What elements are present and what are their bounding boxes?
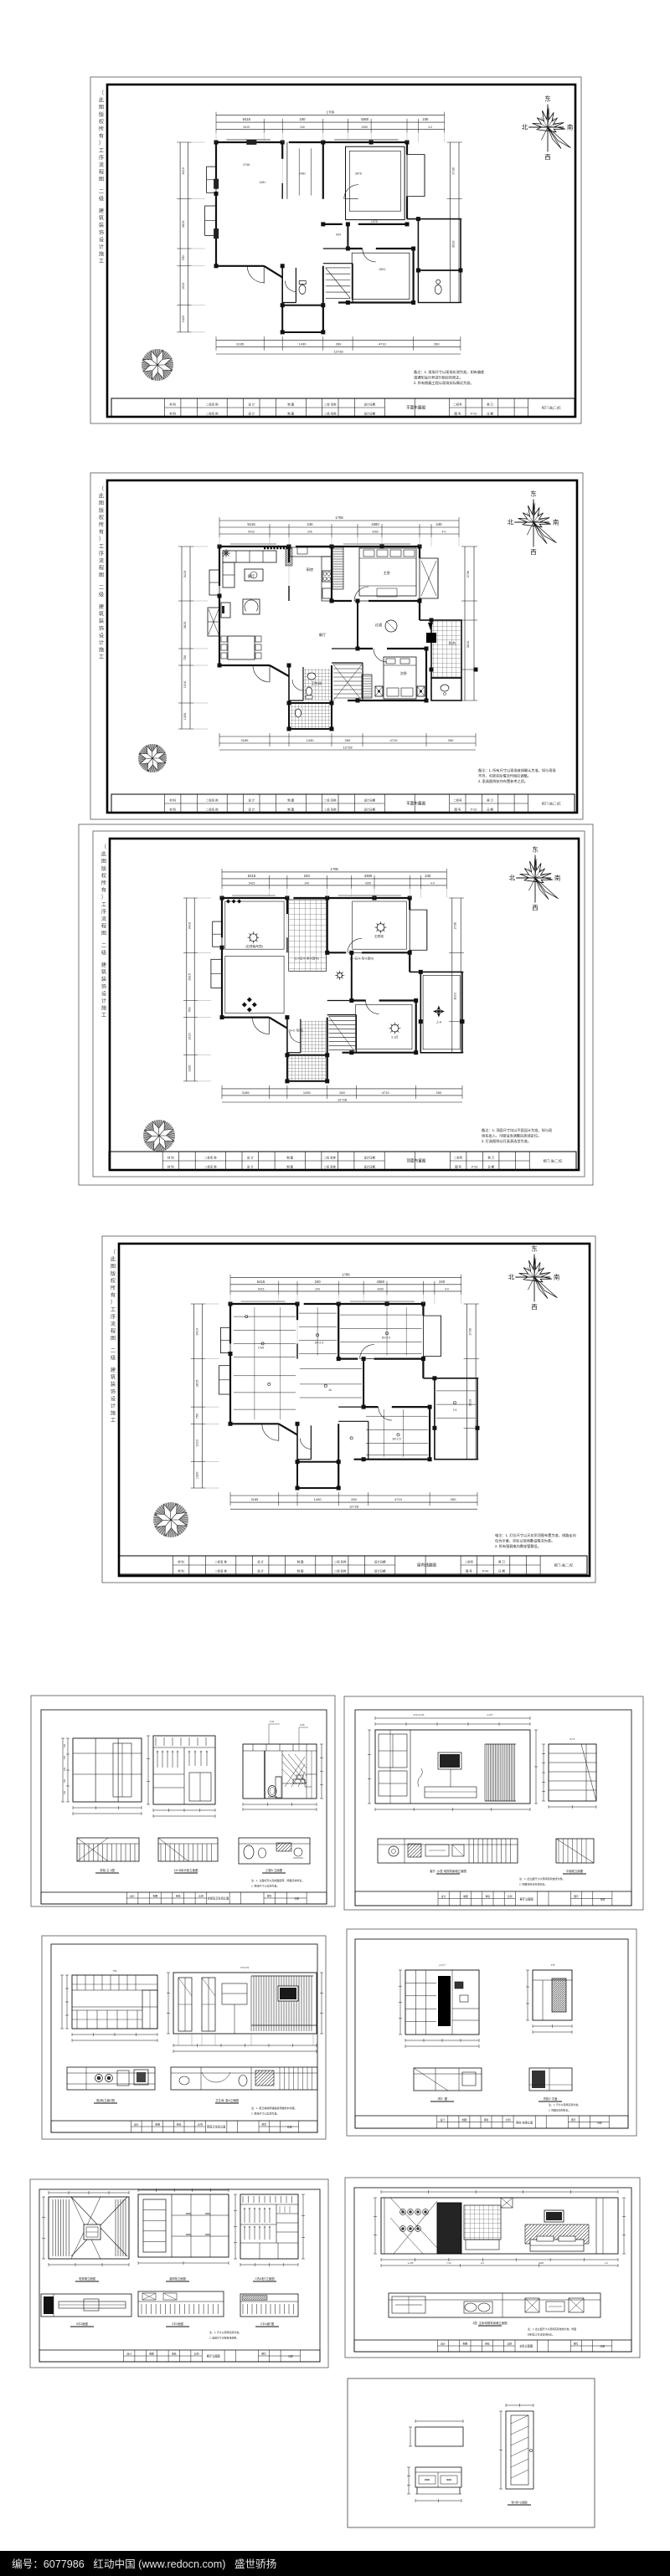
svg-text:备注：1. 顶面尺寸均以平面设计为准，如与现: 备注：1. 顶面尺寸均以平面设计为准，如与现 — [482, 1127, 552, 1133]
svg-text:4260: 4260 — [365, 881, 372, 885]
svg-text:二标 名称: 二标 名称 — [324, 402, 337, 406]
svg-text:（: （ — [99, 90, 104, 96]
svg-text:图: 图 — [101, 859, 106, 865]
svg-text:屋内线路图: 屋内线路图 — [417, 1563, 436, 1568]
svg-text:计: 计 — [111, 1403, 116, 1409]
svg-text:（: （ — [111, 1250, 116, 1255]
svg-text:P-01: P-01 — [471, 412, 477, 415]
svg-text:南: 南 — [554, 1273, 560, 1281]
svg-text:540: 540 — [63, 1778, 66, 1783]
svg-text:二标名 称: 二标名 称 — [206, 411, 219, 415]
svg-text:装: 装 — [101, 976, 106, 983]
svg-text:装: 装 — [99, 222, 104, 228]
svg-text:注：1. 立面标高以完成面起算，饰面见材料表。: 注：1. 立面标高以完成面起算，饰面见材料表。 — [251, 1878, 304, 1882]
svg-text:东: 东 — [531, 1244, 538, 1253]
svg-text:260: 260 — [436, 1090, 442, 1095]
svg-text:540: 540 — [63, 1755, 66, 1759]
svg-text:比例: 比例 — [508, 1895, 513, 1898]
svg-text:设计: 设计 — [441, 1895, 446, 1898]
svg-text:有: 有 — [99, 133, 104, 140]
svg-text:卫生间. 各A立面图: 卫生间. 各A立面图 — [215, 2098, 239, 2102]
svg-text:240: 240 — [422, 117, 429, 121]
svg-text:3010: 3010 — [468, 1399, 472, 1406]
svg-text:260: 260 — [434, 342, 440, 346]
svg-text:施: 施 — [99, 251, 104, 258]
svg-text:制 图: 制 图 — [287, 798, 294, 802]
svg-text:图: 图 — [99, 572, 104, 578]
svg-text:5415: 5415 — [258, 1287, 265, 1291]
svg-text:1A+B床头柜立面图: 1A+B床头柜立面图 — [174, 1868, 198, 1872]
svg-text:图号: 图号 — [574, 2343, 579, 2346]
svg-text:540: 540 — [63, 1743, 66, 1747]
svg-text:-吧Z·-图: -吧Z·-图 — [437, 2097, 448, 2101]
svg-text:流: 流 — [99, 557, 104, 564]
svg-text:5415: 5415 — [257, 1280, 265, 1284]
svg-text:设计: 设计 — [440, 2118, 445, 2122]
svg-text:平面布置图: 平面布置图 — [406, 801, 425, 807]
svg-text:二标 名称: 二标 名称 — [334, 1559, 347, 1563]
svg-text:1430: 1430 — [303, 1090, 312, 1095]
svg-text:上-H: 上-H — [436, 1020, 442, 1024]
svg-text:540: 540 — [63, 1790, 66, 1794]
svg-text:）: ） — [111, 1300, 116, 1306]
svg-text:2815: 2815 — [195, 1380, 198, 1387]
svg-text:程: 程 — [101, 923, 106, 930]
svg-text:二: 二 — [101, 943, 106, 949]
svg-text:级: 级 — [111, 1354, 116, 1361]
svg-text:权: 权 — [99, 514, 104, 521]
svg-text:（: （ — [99, 486, 104, 492]
svg-text:5415: 5415 — [249, 881, 255, 885]
svg-text:阳台: 阳台 — [449, 640, 456, 646]
svg-text:C衣A柜T立面图: C衣A柜T立面图 — [255, 2276, 275, 2281]
svg-text:注：1. 厨卫墙地砖铺贴前须做防水处理。: 注：1. 厨卫墙地砖铺贴前须做防水处理。 — [251, 2106, 296, 2110]
svg-text:序: 序 — [101, 908, 106, 915]
svg-text:厨房: 厨房 — [307, 567, 313, 572]
svg-text:东: 东 — [532, 845, 539, 854]
svg-text:东: 东 — [530, 490, 537, 498]
svg-text:南: 南 — [567, 123, 574, 131]
svg-text:设: 设 — [111, 1395, 116, 1402]
svg-text:P-04: P-04 — [482, 1569, 488, 1573]
svg-text:C平A面T图: C平A面T图 — [260, 2322, 275, 2326]
svg-text:客厅立面图: 客厅立面图 — [207, 2354, 220, 2358]
svg-text:1375: 1375 — [371, 220, 378, 223]
svg-text:制 图: 制 图 — [297, 1568, 304, 1573]
svg-text:2891: 2891 — [379, 268, 385, 271]
svg-text:厨房卫生间立面: 厨房卫生间立面 — [207, 2125, 225, 2129]
svg-text:图 号: 图 号 — [455, 411, 461, 415]
svg-text:240: 240 — [304, 874, 311, 878]
svg-text:二标 名称: 二标 名称 — [323, 1155, 336, 1159]
svg-text:4-0: 4-0 — [428, 126, 432, 129]
svg-text:二标号: 二标号 — [454, 1155, 463, 1159]
svg-text:1?06: 1?06 — [327, 110, 335, 115]
svg-text:1010: 1010 — [188, 1033, 192, 1039]
svg-text:校门·运(二)忆: 校门·运(二)忆 — [542, 802, 561, 806]
svg-text:1?06: 1?06 — [335, 516, 343, 520]
svg-text:制 图: 制 图 — [287, 807, 294, 811]
svg-text:2815: 2815 — [183, 622, 187, 629]
svg-text:男 刀: 男 刀 — [498, 1559, 505, 1563]
svg-text:此: 此 — [99, 97, 104, 104]
svg-text:设计: 设计 — [130, 1895, 135, 1898]
svg-text:日期: 日期 — [287, 2126, 292, 2129]
svg-text:4260: 4260 — [362, 126, 368, 129]
svg-text:3010: 3010 — [454, 993, 457, 999]
svg-text:材 料: 材 料 — [169, 402, 176, 406]
svg-text:衣柜-立-1图: 衣柜-立-1图 — [100, 1868, 115, 1872]
svg-text:注：1. 此立面尺寸以现场实际放线为准。: 注：1. 此立面尺寸以现场实际放线为准。 — [519, 1876, 564, 1881]
svg-text:工: 工 — [99, 544, 104, 550]
svg-text:?-5·0-51: ?-5·0-51 — [240, 1966, 250, 1969]
svg-text:所: 所 — [99, 521, 104, 528]
svg-text:材 料: 材 料 — [167, 1164, 174, 1168]
svg-text:衣柜及卫生间立面: 衣柜及卫生间立面 — [208, 1896, 229, 1901]
svg-text:4-0: 4-0 — [445, 1287, 449, 1291]
svg-text:建: 建 — [101, 962, 106, 968]
svg-text:5平Z面图: 5平Z面图 — [76, 2322, 88, 2326]
svg-text:图号: 图号 — [571, 2118, 576, 2122]
svg-text:材 料: 材 料 — [169, 798, 176, 802]
svg-text:注：1. 此立面尺寸以现场实际放线为准，饰面: 注：1. 此立面尺寸以现场实际放线为准，饰面 — [528, 2327, 576, 2331]
svg-text:4260: 4260 — [372, 531, 379, 534]
svg-text:备注：1. 所有尺寸以现场放线确认为准，如与现场: 备注：1. 所有尺寸以现场放线确认为准，如与现场 — [478, 767, 556, 773]
svg-text:校门·运(二)忆: 校门·运(二)忆 — [554, 1563, 574, 1568]
svg-text:BV-2.5: BV-2.5 — [315, 1341, 323, 1344]
svg-text:二标号: 二标号 — [453, 402, 462, 406]
svg-text:3410: 3410 — [195, 1328, 198, 1335]
svg-text:750: 750 — [183, 655, 187, 660]
svg-text:）: ） — [99, 141, 104, 146]
svg-text:4710: 4710 — [382, 1090, 390, 1095]
svg-text:工: 工 — [101, 902, 106, 908]
svg-text:设 计: 设 计 — [257, 1568, 264, 1573]
svg-text:电注：1. 灯位尺寸以天花吊顶图布置为准，线路走向: 电注：1. 灯位尺寸以天花吊顶图布置为准，线路走向 — [495, 1532, 576, 1538]
svg-text:日 期: 日 期 — [487, 411, 493, 415]
svg-text:此: 此 — [99, 493, 104, 500]
svg-text:设计: 设计 — [441, 2343, 446, 2346]
svg-text:二标名 称: 二标名 称 — [206, 402, 219, 406]
svg-text:南: 南 — [554, 874, 561, 882]
svg-text:1320: 1320 — [195, 1472, 198, 1479]
svg-text:设 计: 设 计 — [247, 1155, 254, 1159]
svg-text:4710: 4710 — [379, 342, 387, 346]
svg-text:设计: 设计 — [126, 2353, 131, 2356]
svg-text:设计日期: 设计日期 — [364, 411, 376, 415]
svg-text:2. 饰面详见材料表。: 2. 饰面详见材料表。 — [549, 2108, 570, 2112]
svg-text:校门·运(二)忆: 校门·运(二)忆 — [544, 1159, 563, 1163]
svg-text:注：1. 尺寸以现场实测为准。: 注：1. 尺寸以现场实测为准。 — [549, 2102, 580, 2106]
svg-text:程: 程 — [111, 1328, 116, 1335]
svg-text:2730: 2730 — [451, 167, 455, 174]
svg-text:图: 图 — [111, 1336, 116, 1342]
svg-text:材 料: 材 料 — [169, 411, 176, 415]
svg-text:顶面布置图: 顶面布置图 — [406, 1158, 425, 1164]
svg-text:制图: 制图 — [155, 2123, 160, 2127]
svg-text:图: 图 — [101, 931, 106, 936]
svg-text:西: 西 — [531, 1303, 538, 1311]
svg-text:日期: 日期 — [600, 2345, 605, 2348]
svg-text:-(=)//个: -(=)//个 — [439, 1963, 446, 1967]
svg-text:图: 图 — [99, 500, 104, 506]
svg-text:3410: 3410 — [183, 571, 187, 577]
svg-text:工: 工 — [99, 148, 104, 154]
svg-text:图: 图 — [99, 105, 104, 110]
svg-text:设计日期: 设计日期 — [364, 807, 376, 811]
svg-text:吧台·衣柜立面: 吧台·衣柜立面 — [516, 2120, 533, 2124]
svg-text:1430: 1430 — [314, 1497, 322, 1501]
svg-text:客厅. 沙发·电视背景墙立面图: 客厅. 沙发·电视背景墙立面图 — [430, 1869, 466, 1873]
svg-text:设 计: 设 计 — [248, 402, 255, 406]
svg-text:3185: 3185 — [250, 1497, 259, 1501]
svg-text:240: 240 — [439, 1280, 446, 1284]
svg-text:(9+C·吊顶): (9+C·吊顶) — [288, 1029, 302, 1033]
svg-text:建: 建 — [99, 208, 104, 214]
svg-text:）: ） — [99, 536, 104, 542]
svg-text:750: 750 — [188, 1007, 191, 1012]
svg-text:1?06: 1?06 — [330, 867, 338, 871]
svg-text:客厅: 客厅 — [248, 573, 255, 579]
svg-text:制 图: 制 图 — [286, 1155, 293, 1159]
svg-text:P-02: P-02 — [471, 808, 477, 811]
svg-text:材 料: 材 料 — [178, 1559, 184, 1563]
svg-text:次卧: 次卧 — [400, 670, 407, 676]
svg-text:北: 北 — [508, 519, 514, 526]
svg-text:设计日期: 设计日期 — [374, 1559, 386, 1563]
svg-text:1010: 1010 — [182, 283, 185, 290]
svg-text:750: 750 — [195, 1414, 198, 1419]
svg-text:平面布置图: 平面布置图 — [406, 405, 425, 411]
svg-text:客厅立面图: 客厅立面图 — [520, 1897, 533, 1901]
svg-text:工: 工 — [111, 1418, 116, 1424]
svg-text:4260: 4260 — [378, 1287, 384, 1291]
svg-text:制 图: 制 图 — [286, 1164, 293, 1168]
svg-text:图号: 图号 — [262, 2123, 267, 2127]
svg-text:二标名 称: 二标名 称 — [204, 1164, 217, 1168]
svg-text:请通知设计师进行相应的修正。: 请通知设计师进行相应的修正。 — [414, 375, 463, 381]
svg-text:北: 北 — [509, 875, 516, 882]
svg-text:(C+石%·吊%顶%): (C+石%·吊%顶%) — [350, 956, 374, 960]
svg-text:审核: 审核 — [486, 1895, 491, 1898]
svg-text:1320: 1320 — [182, 316, 185, 322]
svg-text:衣柜Z·平面: 衣柜Z·平面 — [544, 2096, 558, 2101]
svg-text:240: 240 — [300, 126, 305, 129]
svg-text:序: 序 — [111, 1313, 116, 1320]
svg-text:计: 计 — [101, 998, 106, 1004]
svg-text:二标号: 二标号 — [465, 1559, 474, 1563]
svg-text:2. 饰面材料详见材料表。: 2. 饰面材料详见材料表。 — [519, 1882, 547, 1886]
svg-text:4360: 4360 — [364, 874, 373, 878]
svg-text:3185: 3185 — [241, 738, 250, 742]
svg-text:二标 名称: 二标 名称 — [324, 411, 337, 415]
svg-text:主卧: 主卧 — [384, 570, 390, 576]
svg-text:二: 二 — [99, 189, 104, 195]
svg-text:设计日期: 设计日期 — [364, 798, 376, 802]
svg-text:2. 灯具图例以灯具表选型为准。: 2. 灯具图例以灯具表选型为准。 — [482, 1138, 531, 1144]
svg-text:图 号: 图 号 — [466, 1568, 472, 1573]
svg-text:二标 名称: 二标 名称 — [324, 807, 337, 811]
svg-text:260: 260 — [339, 1090, 345, 1095]
svg-text:2平Z面图: 2平Z面图 — [172, 2322, 183, 2326]
svg-text:施: 施 — [99, 647, 104, 654]
svg-text:240: 240 — [300, 117, 307, 121]
svg-text:904: 904 — [336, 233, 341, 236]
svg-text:审核: 审核 — [176, 1895, 181, 1898]
svg-text:日 期: 日 期 — [487, 807, 493, 811]
svg-text:此: 此 — [111, 1256, 116, 1263]
svg-text:日期: 日期 — [294, 1897, 299, 1901]
svg-text:3185: 3185 — [242, 1090, 250, 1095]
svg-text:筑: 筑 — [101, 969, 107, 976]
svg-text:石膏线: 石膏线 — [374, 934, 384, 938]
svg-text:2815: 2815 — [182, 221, 185, 228]
svg-text:制图: 制图 — [149, 2353, 154, 2356]
svg-text:权: 权 — [111, 1277, 116, 1284]
svg-text:日期: 日期 — [288, 2355, 293, 2358]
svg-text:2-0: 2-0 — [481, 2261, 484, 2265]
svg-text:240: 240 — [436, 522, 443, 526]
svg-text:7-34: 7-34 — [446, 2261, 451, 2265]
svg-text:制 图: 制 图 — [297, 1559, 304, 1563]
svg-text:程: 程 — [99, 169, 104, 176]
svg-text:日期: 日期 — [600, 1898, 606, 1901]
svg-text:(石膏板吊顶): (石膏板吊顶) — [245, 944, 262, 948]
svg-text:图: 图 — [111, 1264, 116, 1270]
svg-text:12?28: 12?28 — [338, 1098, 348, 1102]
svg-text:二标 名称: 二标 名称 — [334, 1568, 347, 1573]
svg-text:仅为示意，实际以现场敷设情况为准。: 仅为示意，实际以现场敷设情况为准。 — [495, 1538, 554, 1544]
svg-text:流: 流 — [111, 1321, 116, 1327]
svg-text:工: 工 — [101, 1013, 106, 1019]
svg-text:序: 序 — [99, 550, 104, 557]
svg-text:260: 260 — [351, 1497, 357, 1501]
svg-text:-6?-5: -6?-5 — [569, 1737, 575, 1741]
svg-text:5415: 5415 — [243, 117, 251, 121]
svg-text:施: 施 — [111, 1410, 116, 1417]
svg-text:2. 所有隐蔽工程以现场实际情况为准。: 2. 所有隐蔽工程以现场实际情况为准。 — [414, 380, 474, 386]
svg-text:程: 程 — [99, 565, 104, 572]
svg-text:设计日期: 设计日期 — [374, 1568, 386, 1573]
svg-text:4360: 4360 — [361, 117, 369, 121]
svg-text:540: 540 — [63, 1767, 66, 1771]
svg-text:比例: 比例 — [198, 1895, 204, 1898]
svg-text:设: 设 — [99, 632, 104, 639]
svg-text:二: 二 — [111, 1348, 116, 1354]
svg-text:筑: 筑 — [99, 611, 105, 618]
svg-text:12?28: 12?28 — [349, 1505, 359, 1509]
svg-text:图: 图 — [99, 177, 104, 182]
svg-text:1320: 1320 — [188, 1065, 191, 1072]
svg-text:（: （ — [101, 844, 106, 850]
svg-text:240: 240 — [425, 874, 431, 878]
svg-text:750: 750 — [182, 255, 185, 260]
svg-text:此: 此 — [101, 851, 106, 858]
svg-text:图号: 图号 — [574, 1895, 579, 1898]
svg-text:3410: 3410 — [182, 167, 185, 174]
svg-text:比例: 比例 — [194, 2353, 199, 2356]
svg-text:3748: 3748 — [243, 163, 250, 167]
svg-text:4360: 4360 — [377, 1280, 385, 1284]
svg-text:平面柜立面图: 平面柜立面图 — [566, 1869, 584, 1873]
svg-text:5415: 5415 — [248, 874, 256, 878]
svg-text:二标号: 二标号 — [453, 798, 462, 802]
svg-text:卫生间: 卫生间 — [312, 680, 322, 686]
svg-text:版: 版 — [99, 111, 104, 118]
svg-text:饰: 饰 — [101, 983, 106, 990]
svg-text:二标名 称: 二标名 称 — [214, 1568, 227, 1573]
svg-text:1481: 1481 — [259, 181, 265, 184]
svg-text:装: 装 — [99, 618, 104, 624]
svg-text:有: 有 — [99, 529, 104, 536]
svg-text:图 号: 图 号 — [455, 1164, 461, 1168]
svg-text:?50: ?50 — [113, 1969, 117, 1973]
svg-text:建: 建 — [99, 603, 104, 610]
svg-text:260: 260 — [448, 738, 454, 742]
svg-text:2730: 2730 — [466, 571, 470, 577]
svg-text:男 刀: 男 刀 — [487, 402, 493, 406]
svg-text:设 计: 设 计 — [247, 1164, 254, 1168]
svg-text:3185: 3185 — [236, 342, 245, 346]
svg-text:南: 南 — [553, 518, 559, 526]
svg-text:2815: 2815 — [188, 973, 192, 980]
svg-text:材 料: 材 料 — [167, 1155, 174, 1159]
svg-text:图号: 图号 — [261, 2353, 266, 2356]
svg-text:所: 所 — [111, 1285, 116, 1291]
svg-text:比例: 比例 — [506, 2118, 511, 2122]
svg-text:男 刀: 男 刀 — [487, 798, 493, 802]
svg-text:制 图: 制 图 — [287, 411, 294, 415]
svg-text:有: 有 — [111, 1292, 116, 1299]
svg-text:场有出入，可做适当调整后放线定位。: 场有出入，可做适当调整后放线定位。 — [482, 1133, 541, 1139]
svg-text:工程A·立面图: 工程A·立面图 — [265, 1868, 283, 1872]
svg-text:1320: 1320 — [183, 713, 187, 720]
svg-text:流: 流 — [99, 162, 104, 168]
svg-text:工: 工 — [99, 259, 104, 264]
svg-text:4360: 4360 — [371, 522, 379, 526]
svg-text:2. 现场尺寸以实测为准。: 2. 现场尺寸以实测为准。 — [251, 2112, 279, 2116]
svg-text:二标名 称: 二标名 称 — [206, 807, 219, 811]
svg-text:A-05: A-05 — [300, 1723, 305, 1727]
svg-text:2?4-(1/7)4: 2?4-(1/7)4 — [414, 1713, 425, 1716]
svg-text:5415: 5415 — [244, 126, 250, 129]
svg-text:240: 240 — [307, 522, 314, 526]
svg-text:设: 设 — [99, 236, 104, 243]
svg-text:饰: 饰 — [99, 229, 104, 236]
svg-text:备注：1. 现场尺寸以现场实测为准，如有偏差: 备注：1. 现场尺寸以现场实测为准，如有偏差 — [414, 369, 484, 375]
svg-text:制 图: 制 图 — [287, 402, 294, 406]
svg-text:260: 260 — [336, 342, 342, 346]
svg-text:餐厅: 餐厅 — [319, 632, 326, 638]
svg-text:所: 所 — [99, 126, 104, 132]
svg-text:3876: 3876 — [355, 172, 362, 176]
svg-text:权: 权 — [101, 872, 106, 879]
svg-text:二标名 称: 二标名 称 — [214, 1559, 227, 1563]
svg-text:2. 家具图例仅作布置参考之用。: 2. 家具图例仅作布置参考之用。 — [478, 778, 528, 784]
svg-text:级: 级 — [99, 195, 104, 202]
svg-text:二: 二 — [99, 585, 104, 591]
svg-text:5415: 5415 — [248, 531, 255, 534]
svg-text:3010: 3010 — [451, 241, 455, 248]
svg-text:电视墙立面图: 电视墙立面图 — [79, 2276, 95, 2281]
svg-text:西: 西 — [530, 548, 537, 556]
svg-text:1430: 1430 — [299, 342, 307, 346]
svg-text:2.5: 2.5 — [453, 1409, 457, 1412]
svg-text:鞋C柜T立面图: 鞋C柜T立面图 — [512, 2500, 528, 2504]
svg-text:材 料: 材 料 — [178, 1568, 184, 1573]
svg-text:计: 计 — [99, 639, 104, 646]
svg-text:设 计: 设 计 — [257, 1559, 264, 1563]
